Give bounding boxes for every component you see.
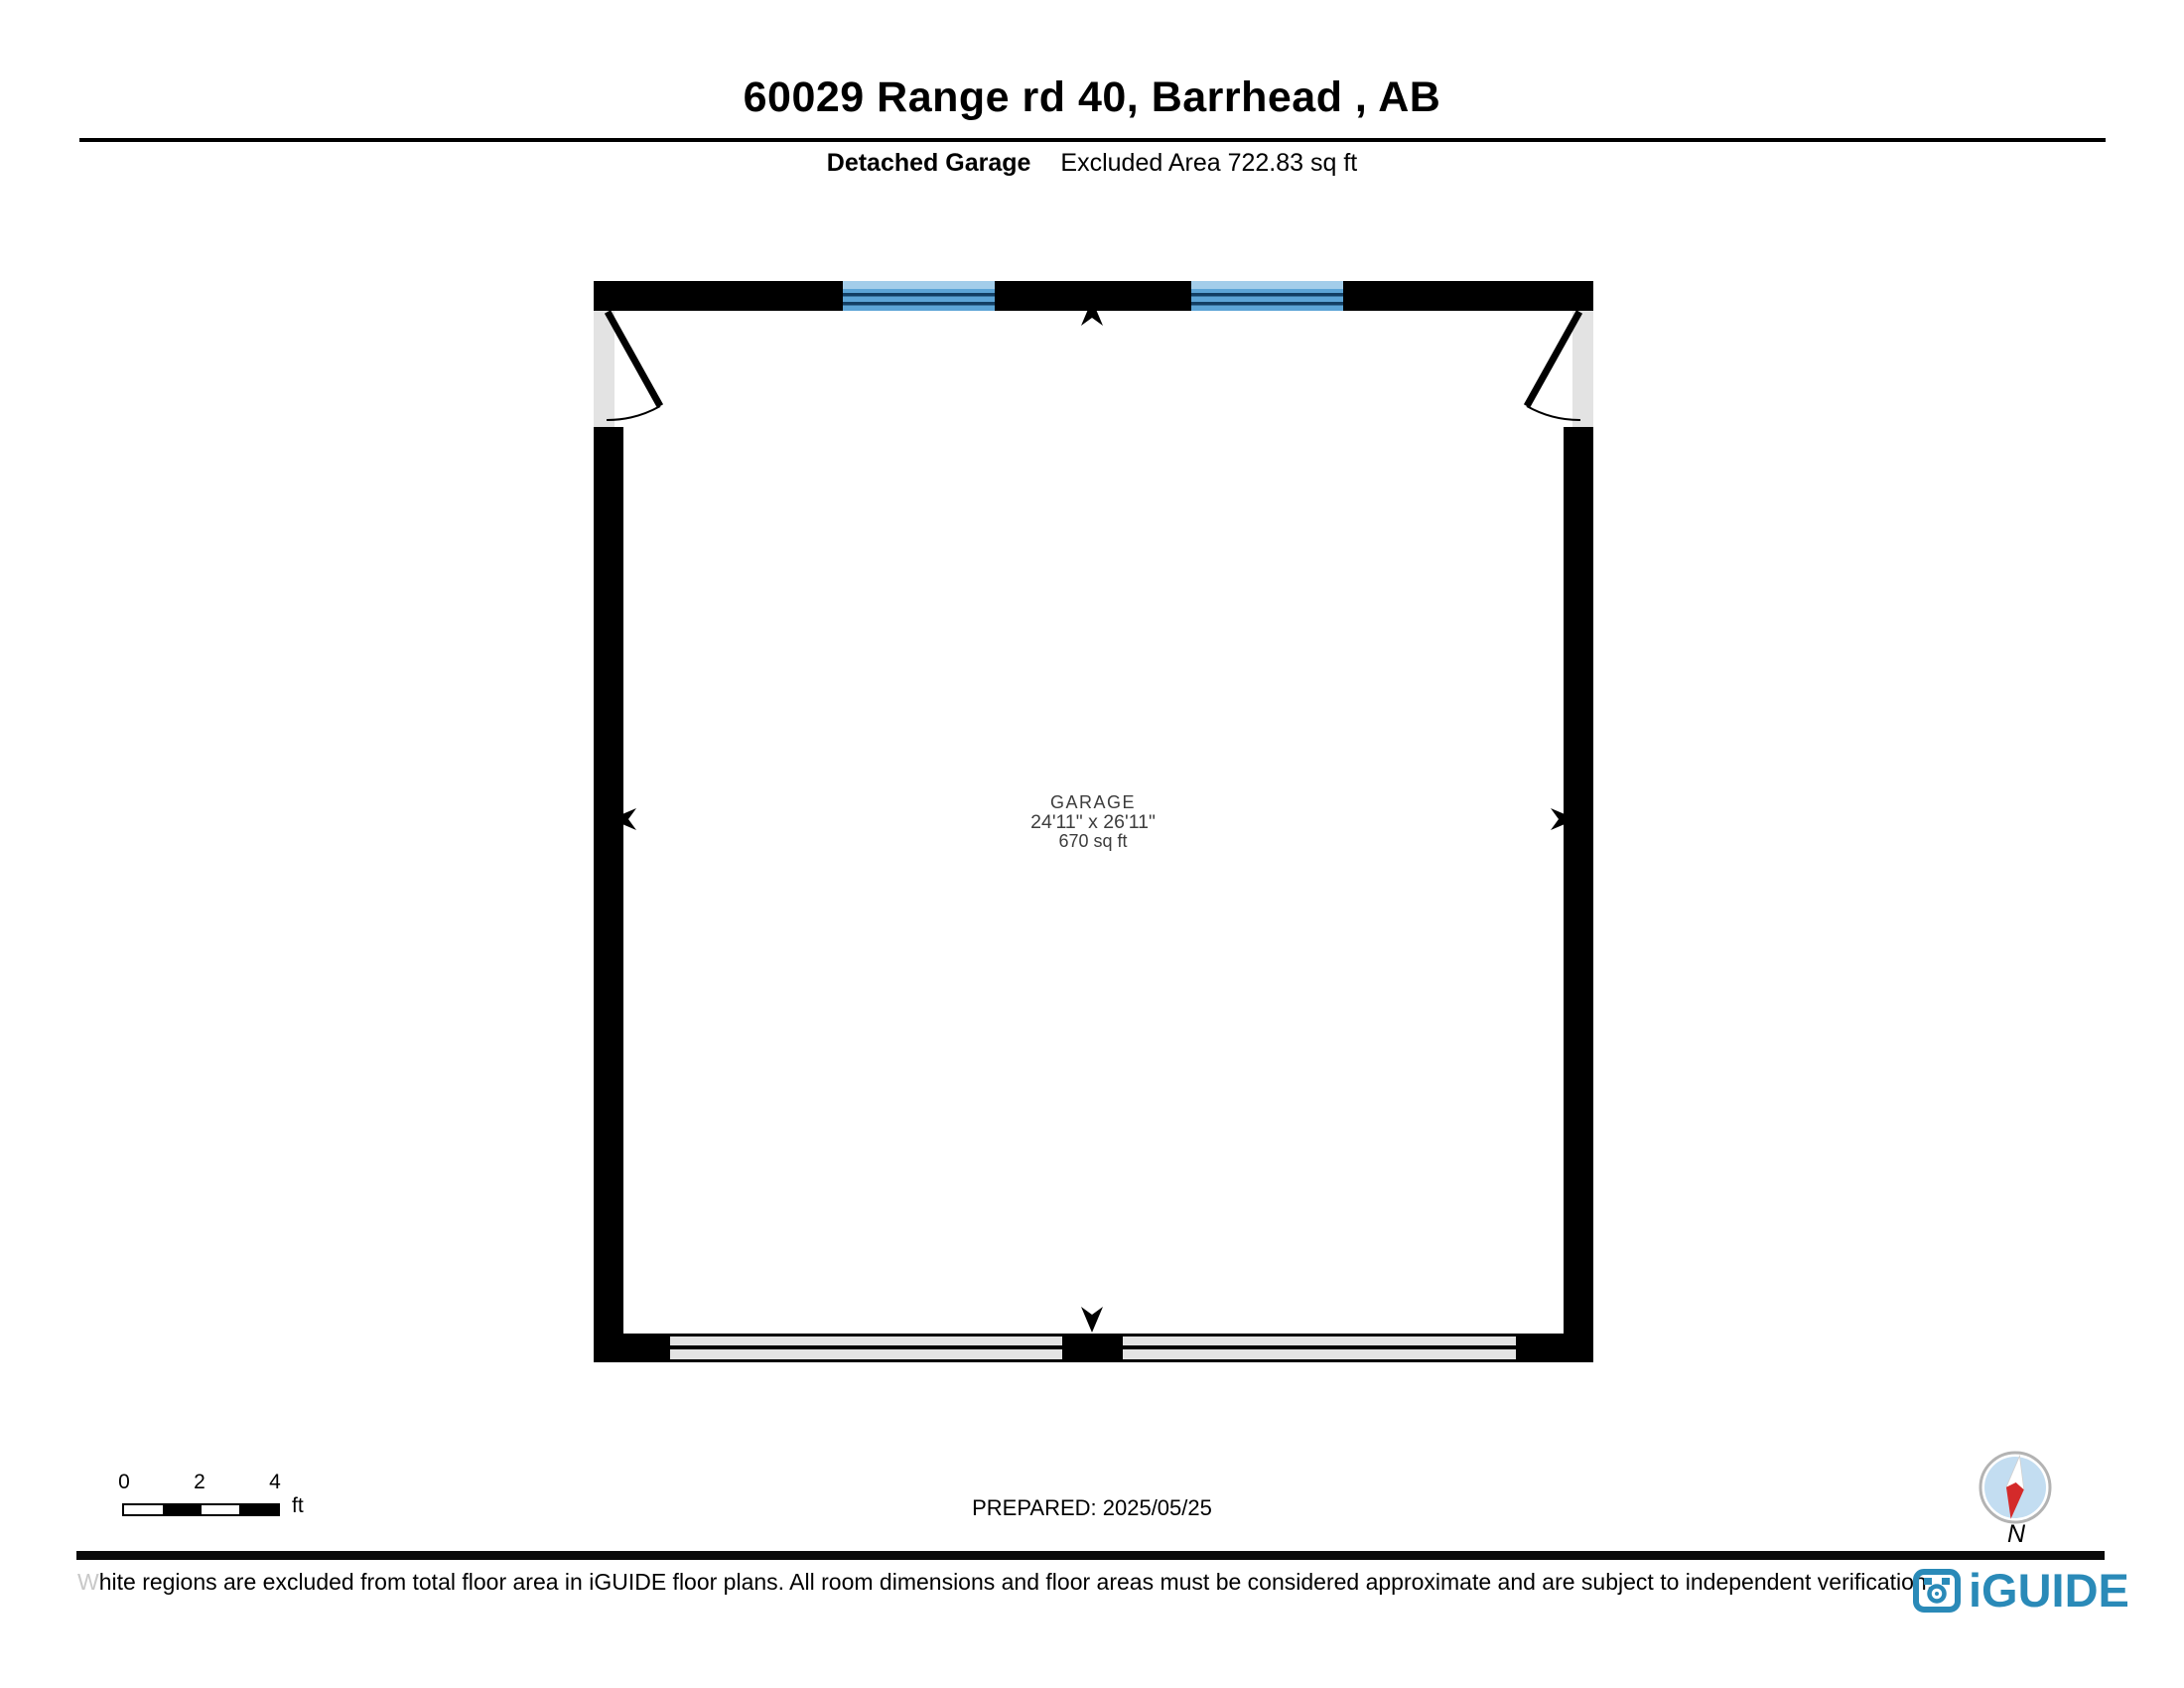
compass-north-label: N [1981,1520,2051,1549]
door-left [594,311,660,427]
room-name: GARAGE [1050,792,1136,812]
floor-plan-svg: GARAGE 24'11" x 26'11" 670 sq ft [594,281,1593,1362]
scale-tick-0: 0 [114,1471,134,1494]
excluded-area-label: Excluded Area 722.83 sq ft [1060,149,1357,178]
door-right [1527,311,1593,427]
room-area: 670 sq ft [1058,831,1127,851]
floor-plan: GARAGE 24'11" x 26'11" 670 sq ft [594,281,1593,1362]
scale-tick-4: 4 [265,1471,285,1494]
disclaimer-lead-char: W [77,1569,99,1595]
arrow-down-icon [1081,1307,1103,1333]
subtitle: Detached Garage Excluded Area 722.83 sq … [0,149,2184,178]
disclaimer-body: hite regions are excluded from total flo… [99,1569,1933,1595]
page-title: 60029 Range rd 40, Barrhead , AB [0,73,2184,122]
room-dimensions: 24'11" x 26'11" [1030,811,1156,833]
iguide-logo: iGUIDE [1912,1563,2129,1618]
garage-door-opening [594,1334,1593,1362]
footer-divider [76,1551,2105,1560]
scale-tick-2: 2 [190,1471,209,1494]
prepared-date: PREPARED: 2025/05/25 [0,1495,2184,1521]
window-icon [1191,281,1343,311]
compass-icon [1978,1450,2053,1525]
iguide-camera-icon [1912,1567,1962,1615]
window-icon [843,281,995,311]
title-divider [79,138,2106,142]
iguide-wordmark: iGUIDE [1969,1563,2129,1618]
disclaimer: White regions are excluded from total fl… [77,1569,1933,1596]
floorplan-page: { "header": { "title": "60029 Range rd 4… [0,0,2184,1688]
floor-label: Detached Garage [827,149,1031,178]
